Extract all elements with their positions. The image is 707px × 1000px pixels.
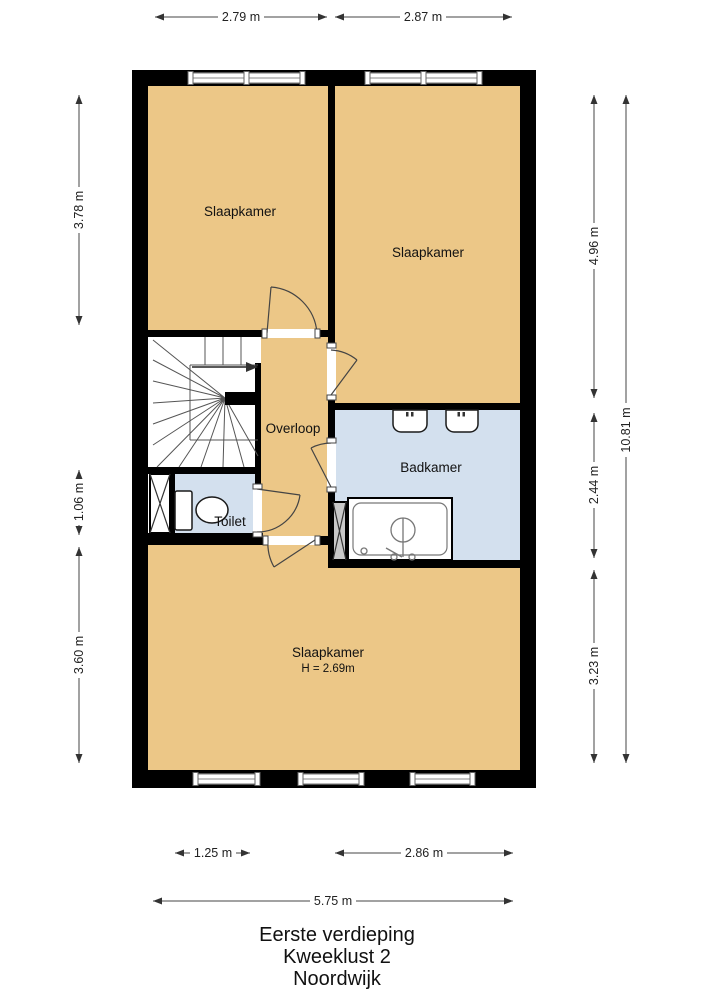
wall-stairs-bottom xyxy=(148,467,255,474)
wall-outer-right xyxy=(520,70,536,788)
dim-right-1-value: 4.96 m xyxy=(587,227,601,265)
label-slaapkamer-bottom-height: H = 2.69m xyxy=(301,663,354,675)
window-bottom-2-icon xyxy=(298,773,364,786)
label-slaapkamer-top-left: Slaapkamer xyxy=(204,204,277,219)
wall-partition-center xyxy=(328,86,335,568)
wall-badkamer-bottom xyxy=(328,560,520,568)
window-bottom-1-icon xyxy=(193,773,260,786)
duct-icon xyxy=(333,502,346,560)
label-slaapkamer-bottom: Slaapkamer xyxy=(292,645,365,660)
window-bottom-3-icon xyxy=(410,773,475,786)
dim-bottom-total-value: 5.75 m xyxy=(314,894,352,908)
dim-bottom-1-value: 1.25 m xyxy=(194,846,232,860)
stairs-void-bar xyxy=(225,392,258,405)
dim-right-2-value: 2.44 m xyxy=(587,466,601,504)
duct-icon xyxy=(150,474,170,533)
dim-right-3-value: 3.23 m xyxy=(587,647,601,685)
window-top-right-icon xyxy=(365,72,482,85)
title-project: Kweeklust 2 xyxy=(283,946,391,968)
dim-left-2-value: 1.06 m xyxy=(72,483,86,521)
wall-outer-left xyxy=(132,70,148,788)
dim-left-1-value: 3.78 m xyxy=(72,191,86,229)
floor-plan-page: Slaapkamer Slaapkamer Overloop Badkamer … xyxy=(0,0,707,1000)
sink-icon xyxy=(446,410,478,432)
wall-toilet-bottom xyxy=(148,533,263,545)
label-slaapkamer-top-right: Slaapkamer xyxy=(392,245,465,260)
title-floor: Eerste verdieping xyxy=(259,924,415,946)
dim-top-2-value: 2.87 m xyxy=(404,10,442,24)
label-overloop: Overloop xyxy=(266,421,321,436)
window-top-left-icon xyxy=(188,72,305,85)
dim-right-total-value: 10.81 m xyxy=(619,407,633,452)
dim-top-1-value: 2.79 m xyxy=(222,10,260,24)
shower-icon xyxy=(348,498,452,560)
dim-left-3-value: 3.60 m xyxy=(72,636,86,674)
sink-icon xyxy=(393,410,427,432)
wall-badkamer-top xyxy=(328,403,520,410)
label-toilet: Toilet xyxy=(214,514,246,529)
dim-bottom-2-value: 2.86 m xyxy=(405,846,443,860)
floor-plan-svg: Slaapkamer Slaapkamer Overloop Badkamer … xyxy=(0,0,707,1000)
label-badkamer: Badkamer xyxy=(400,460,462,475)
title-city: Noordwijk xyxy=(293,968,382,990)
